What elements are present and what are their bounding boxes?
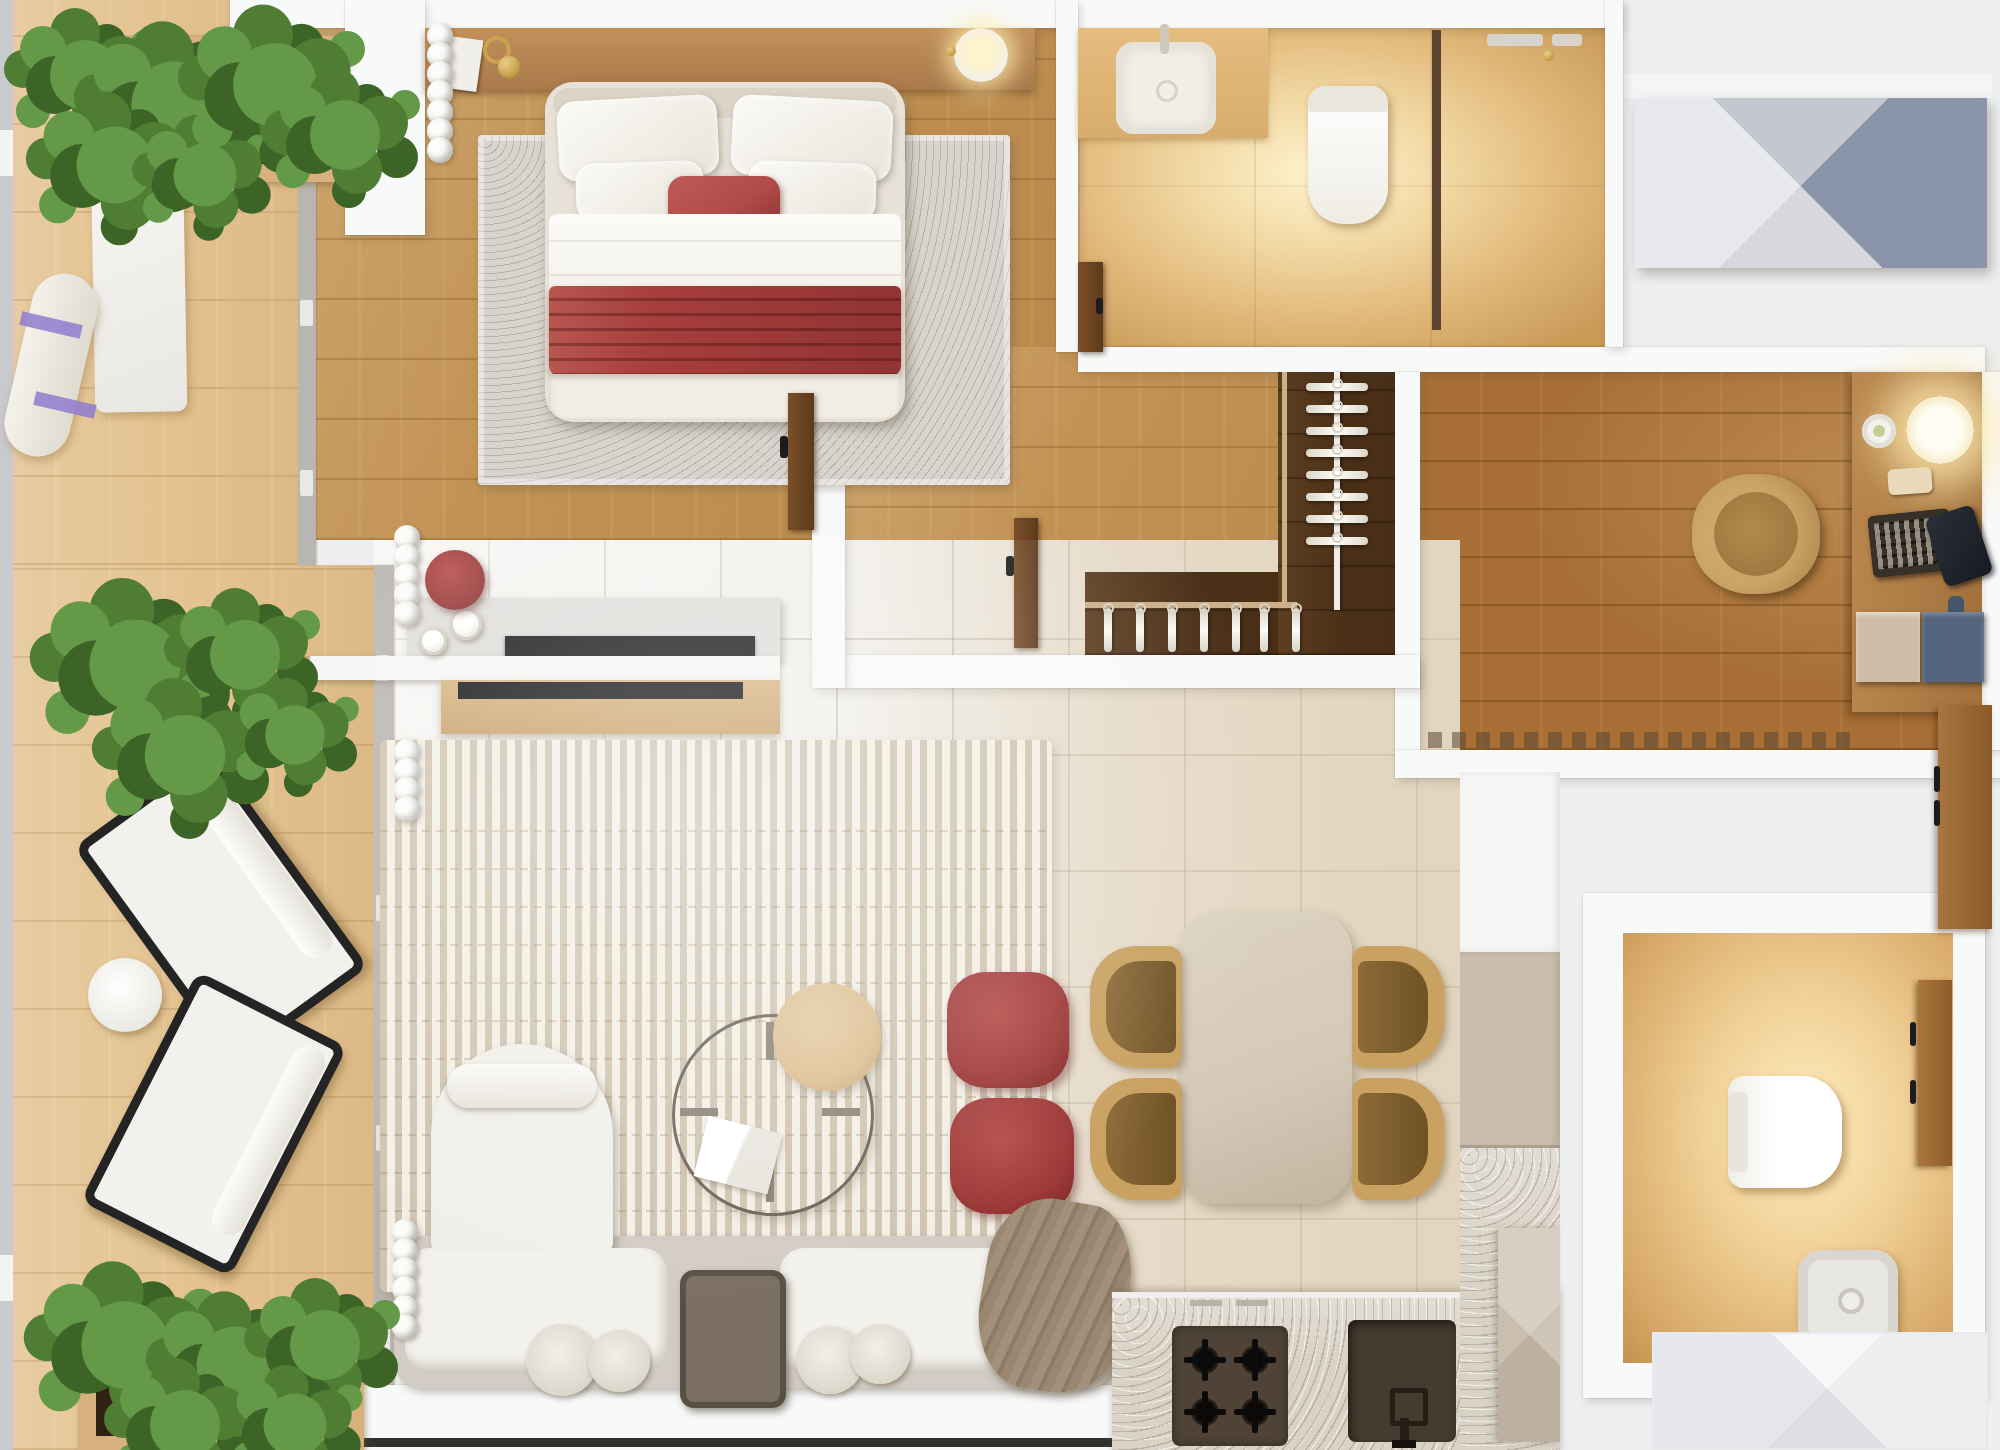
- sc-item: [427, 137, 453, 163]
- shrub-top-left: [20, 10, 30, 20]
- hgv-item: [1104, 608, 1112, 652]
- white-faceted-mat: [1652, 1332, 1988, 1450]
- lounge-side-table: [88, 958, 162, 1032]
- kitchen-hob: [1172, 1326, 1288, 1446]
- wall-bathroom-right: [1605, 0, 1623, 347]
- curtain-living-upper: [392, 746, 422, 822]
- desk-lamp-glow: [1906, 396, 1974, 464]
- entry-timber-door: [1938, 705, 1992, 929]
- smartphone: [1887, 466, 1933, 495]
- round-cushion: [850, 1324, 910, 1384]
- white-cup: [419, 627, 447, 655]
- sofa-chaise-roll: [447, 1064, 597, 1108]
- entry-door-handle: [1934, 800, 1940, 826]
- drawer-unit-beige: [1856, 612, 1920, 682]
- curtain-living-lower: [390, 1226, 420, 1340]
- bedroom-door: [788, 393, 814, 530]
- sc-item: [394, 601, 420, 627]
- red-dressing-stool: [425, 550, 485, 610]
- closet-hangers-bottom-2: [1248, 608, 1312, 652]
- serving-tray: [680, 1270, 786, 1408]
- closet-door: [1014, 518, 1038, 648]
- shrub-bottom: [40, 1270, 50, 1280]
- balcony-rail-tick: [0, 1255, 13, 1301]
- balcony-edge-rail: [0, 0, 13, 1450]
- hgv-item: [1168, 608, 1176, 652]
- bed-footer-fold: [549, 374, 901, 418]
- hg-item: [1306, 405, 1368, 413]
- faceted-doormat: [1635, 98, 1987, 268]
- dining-chair: [1352, 946, 1444, 1068]
- hgv-item: [1232, 608, 1240, 652]
- wall-office-left: [1395, 372, 1420, 750]
- closet-rail-left: [1282, 372, 1287, 608]
- dining-chair: [1352, 1078, 1444, 1200]
- burner-item: [1188, 1343, 1222, 1377]
- hgv-item: [1260, 608, 1268, 652]
- kitchen-tall-cabinet-white: [1460, 772, 1560, 952]
- hg-item: [1306, 427, 1368, 435]
- powder-vanity-timber: [1918, 980, 1952, 1166]
- kitchen-cabinet-taupe: [1460, 952, 1560, 1148]
- shower-knob: [1543, 50, 1554, 61]
- closet-door-handle: [1006, 556, 1014, 576]
- exterior-area: [1616, 0, 2000, 74]
- burner-item: [1188, 1395, 1222, 1429]
- powder-vanity-handle: [1910, 1022, 1916, 1046]
- red-pouf: [947, 972, 1069, 1088]
- dining-table: [1178, 912, 1352, 1204]
- brass-ball-lamp: [498, 56, 520, 78]
- hg-item: [1306, 537, 1368, 545]
- floor-plan: [0, 0, 2000, 1450]
- coffee-table-leg: [680, 1108, 718, 1116]
- hgv-item: [1200, 608, 1208, 652]
- office-chair-seat: [1714, 492, 1798, 576]
- closet-hangers-bottom: [1092, 608, 1252, 652]
- shrub-middle: [60, 580, 70, 590]
- sc-item: [394, 796, 420, 822]
- bathroom-door-handle: [1096, 298, 1103, 314]
- powder-sink-drain: [1838, 1288, 1864, 1314]
- exterior-area: [1610, 268, 2000, 347]
- timber-disc-table: [773, 983, 881, 1091]
- dining-chair: [1090, 1078, 1182, 1200]
- counter-bar-mark: [1190, 1300, 1222, 1306]
- wall-bedroom-bathroom: [1056, 0, 1078, 352]
- powder-vanity-handle: [1910, 1080, 1916, 1104]
- hg-item: [1306, 493, 1368, 501]
- shower-fitting: [1487, 34, 1543, 46]
- toilet-main-tank: [1308, 86, 1388, 112]
- drawer-unit-blue: [1922, 612, 1984, 682]
- red-throw-blanket: [549, 286, 901, 376]
- office-floor-vent: [1428, 732, 1852, 748]
- kitchen-faucet-ring: [1390, 1388, 1428, 1426]
- sc-item: [392, 1314, 418, 1340]
- burner-item: [1238, 1395, 1272, 1429]
- shrub-top-planter: [200, 10, 210, 20]
- shower-partition: [1432, 30, 1441, 330]
- closet-hangers-vertical: [1305, 376, 1369, 552]
- wall-living-hall: [812, 460, 845, 688]
- curtain-bedroom: [424, 30, 456, 163]
- dish-dot: [1873, 425, 1885, 437]
- wall-hall-bottom: [845, 655, 1420, 688]
- hg-item: [1306, 383, 1368, 391]
- hg-item: [1306, 515, 1368, 523]
- hg-item: [1306, 449, 1368, 457]
- tv-screen-bedroom: [505, 636, 755, 658]
- sink-faucet: [1160, 24, 1169, 54]
- dishwasher-facet-panel: [1498, 1228, 1560, 1442]
- wall-bathroom-bottom: [1078, 347, 1985, 372]
- counter-bar-mark: [1236, 1300, 1268, 1306]
- round-cushion: [588, 1330, 650, 1392]
- powder-toilet-plate: [1728, 1092, 1748, 1172]
- bedroom-door-handle: [780, 436, 788, 458]
- kitchen-faucet-base: [1392, 1440, 1416, 1448]
- white-cup: [450, 608, 482, 640]
- red-pouf: [950, 1098, 1074, 1214]
- tv-screen-living: [458, 682, 743, 699]
- sink-drain: [1156, 80, 1178, 102]
- hg-item: [1306, 471, 1368, 479]
- coffee-table-leg: [822, 1108, 860, 1116]
- curtain-console: [392, 532, 422, 627]
- exterior-white-band: [1620, 74, 1992, 98]
- hgv-item: [1292, 608, 1300, 652]
- shower-fitting: [1552, 34, 1582, 46]
- dining-chair: [1090, 946, 1182, 1068]
- bowl-lamp: [954, 28, 1008, 82]
- tv-console-counter: [310, 656, 780, 680]
- balcony-rail-tick: [0, 130, 13, 176]
- hgv-item: [1136, 608, 1144, 652]
- burner-item: [1238, 1343, 1272, 1377]
- gold-dot: [946, 46, 956, 56]
- entry-door-handle: [1934, 766, 1940, 792]
